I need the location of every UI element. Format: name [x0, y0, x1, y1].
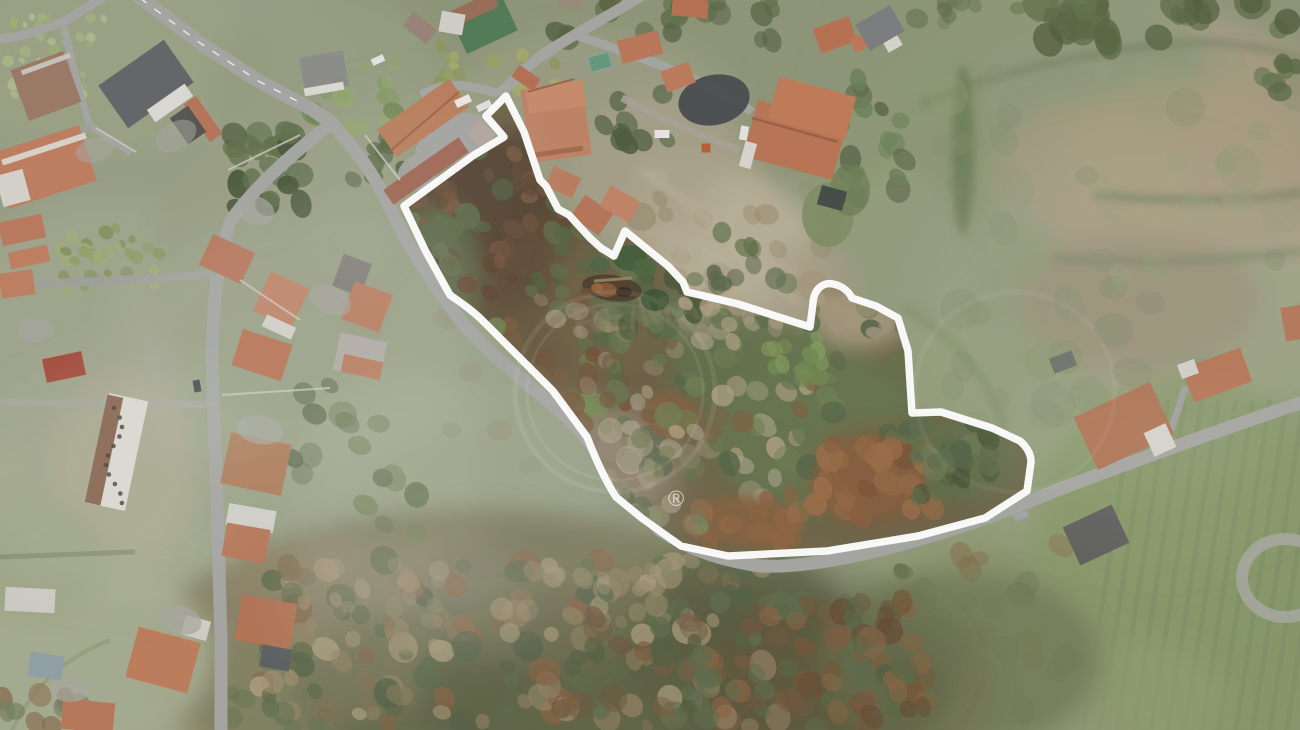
svg-text:®: ®: [668, 486, 684, 511]
